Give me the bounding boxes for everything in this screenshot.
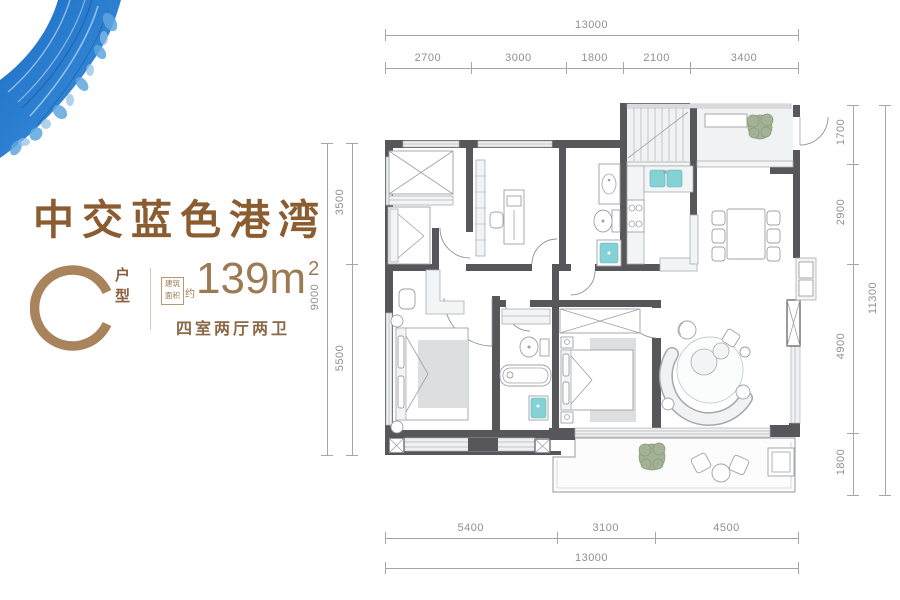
dim-line <box>885 105 886 495</box>
dim-tick <box>879 495 891 496</box>
dim-label: 4900 <box>835 316 847 376</box>
dim-tick <box>847 105 859 106</box>
dim-tick <box>385 62 386 74</box>
dim-line <box>327 143 328 455</box>
dim-label: 3000 <box>488 52 548 64</box>
dim-label: 9000 <box>309 267 321 327</box>
dim-tick <box>471 62 472 74</box>
dim-line <box>352 143 353 455</box>
dim-label: 13000 <box>562 19 622 31</box>
dim-label: 3400 <box>714 52 774 64</box>
dim-line <box>385 538 798 539</box>
floorplan-page: 中交蓝色港湾 C 户型 建筑 面积 约 139m2 四室两厅两卫 <box>0 0 900 600</box>
dim-label: 5400 <box>441 522 501 534</box>
dim-tick <box>346 455 358 456</box>
dim-tick <box>798 532 799 544</box>
dim-tick <box>798 29 799 41</box>
dim-tick <box>879 105 891 106</box>
dim-line <box>385 568 798 569</box>
dim-label: 2900 <box>835 182 847 242</box>
dim-label: 5500 <box>334 328 346 388</box>
dim-tick <box>847 495 859 496</box>
dim-line <box>385 68 798 69</box>
dim-label: 1800 <box>835 432 847 492</box>
dim-tick <box>798 562 799 574</box>
dim-label: 4500 <box>697 522 757 534</box>
dimension-annotations: 1300027003000180021003400540031004500130… <box>0 0 900 600</box>
dim-label: 1700 <box>835 102 847 162</box>
dim-tick <box>655 532 656 544</box>
dim-tick <box>847 164 859 165</box>
dim-label: 2700 <box>398 52 458 64</box>
dim-tick <box>847 433 859 434</box>
dim-label: 13000 <box>562 552 622 564</box>
dim-label: 11300 <box>867 268 879 328</box>
dim-tick <box>321 143 333 144</box>
dim-line <box>385 35 798 36</box>
dim-label: 1800 <box>565 52 625 64</box>
dim-tick <box>321 455 333 456</box>
dim-tick <box>690 62 691 74</box>
dim-tick <box>557 532 558 544</box>
dim-tick <box>385 29 386 41</box>
dim-label: 3500 <box>334 172 346 232</box>
dim-tick <box>798 62 799 74</box>
dim-tick <box>847 264 859 265</box>
dim-tick <box>346 264 358 265</box>
dim-tick <box>346 143 358 144</box>
dim-label: 3100 <box>576 522 636 534</box>
dim-tick <box>385 562 386 574</box>
dim-label: 2100 <box>627 52 687 64</box>
dim-tick <box>385 532 386 544</box>
